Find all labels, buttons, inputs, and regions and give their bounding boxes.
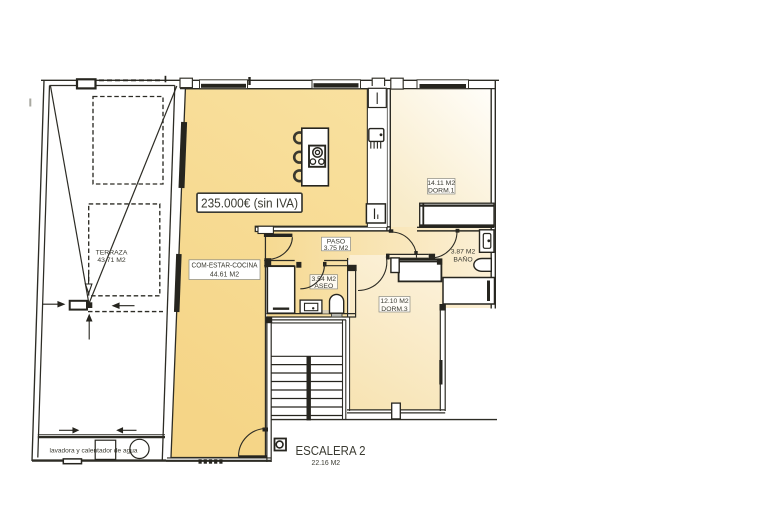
svg-text:3.75 M2: 3.75 M2 — [324, 245, 349, 252]
svg-text:ASEO: ASEO — [314, 283, 333, 290]
svg-text:22.16 M2: 22.16 M2 — [312, 458, 341, 467]
svg-text:43.71 M2: 43.71 M2 — [97, 257, 126, 264]
svg-text:235.000€ (sin IVA): 235.000€ (sin IVA) — [201, 196, 298, 211]
svg-text:lavadora y calentador de agua: lavadora y calentador de agua — [50, 447, 138, 454]
svg-text:TERRAZA: TERRAZA — [96, 250, 128, 257]
svg-text:14.11 M2: 14.11 M2 — [427, 180, 455, 187]
svg-text:DORM.1: DORM.1 — [428, 188, 455, 195]
svg-text:COM-ESTAR-COCINA: COM-ESTAR-COCINA — [192, 263, 258, 270]
svg-text:ESCALERA 2: ESCALERA 2 — [296, 443, 366, 458]
svg-text:12.10 M2: 12.10 M2 — [380, 298, 409, 305]
svg-text:DORM.3: DORM.3 — [381, 306, 408, 313]
svg-text:44.61 M2: 44.61 M2 — [210, 272, 239, 279]
svg-text:BAÑO: BAÑO — [453, 255, 472, 264]
svg-text:3.87 M2: 3.87 M2 — [451, 249, 476, 256]
